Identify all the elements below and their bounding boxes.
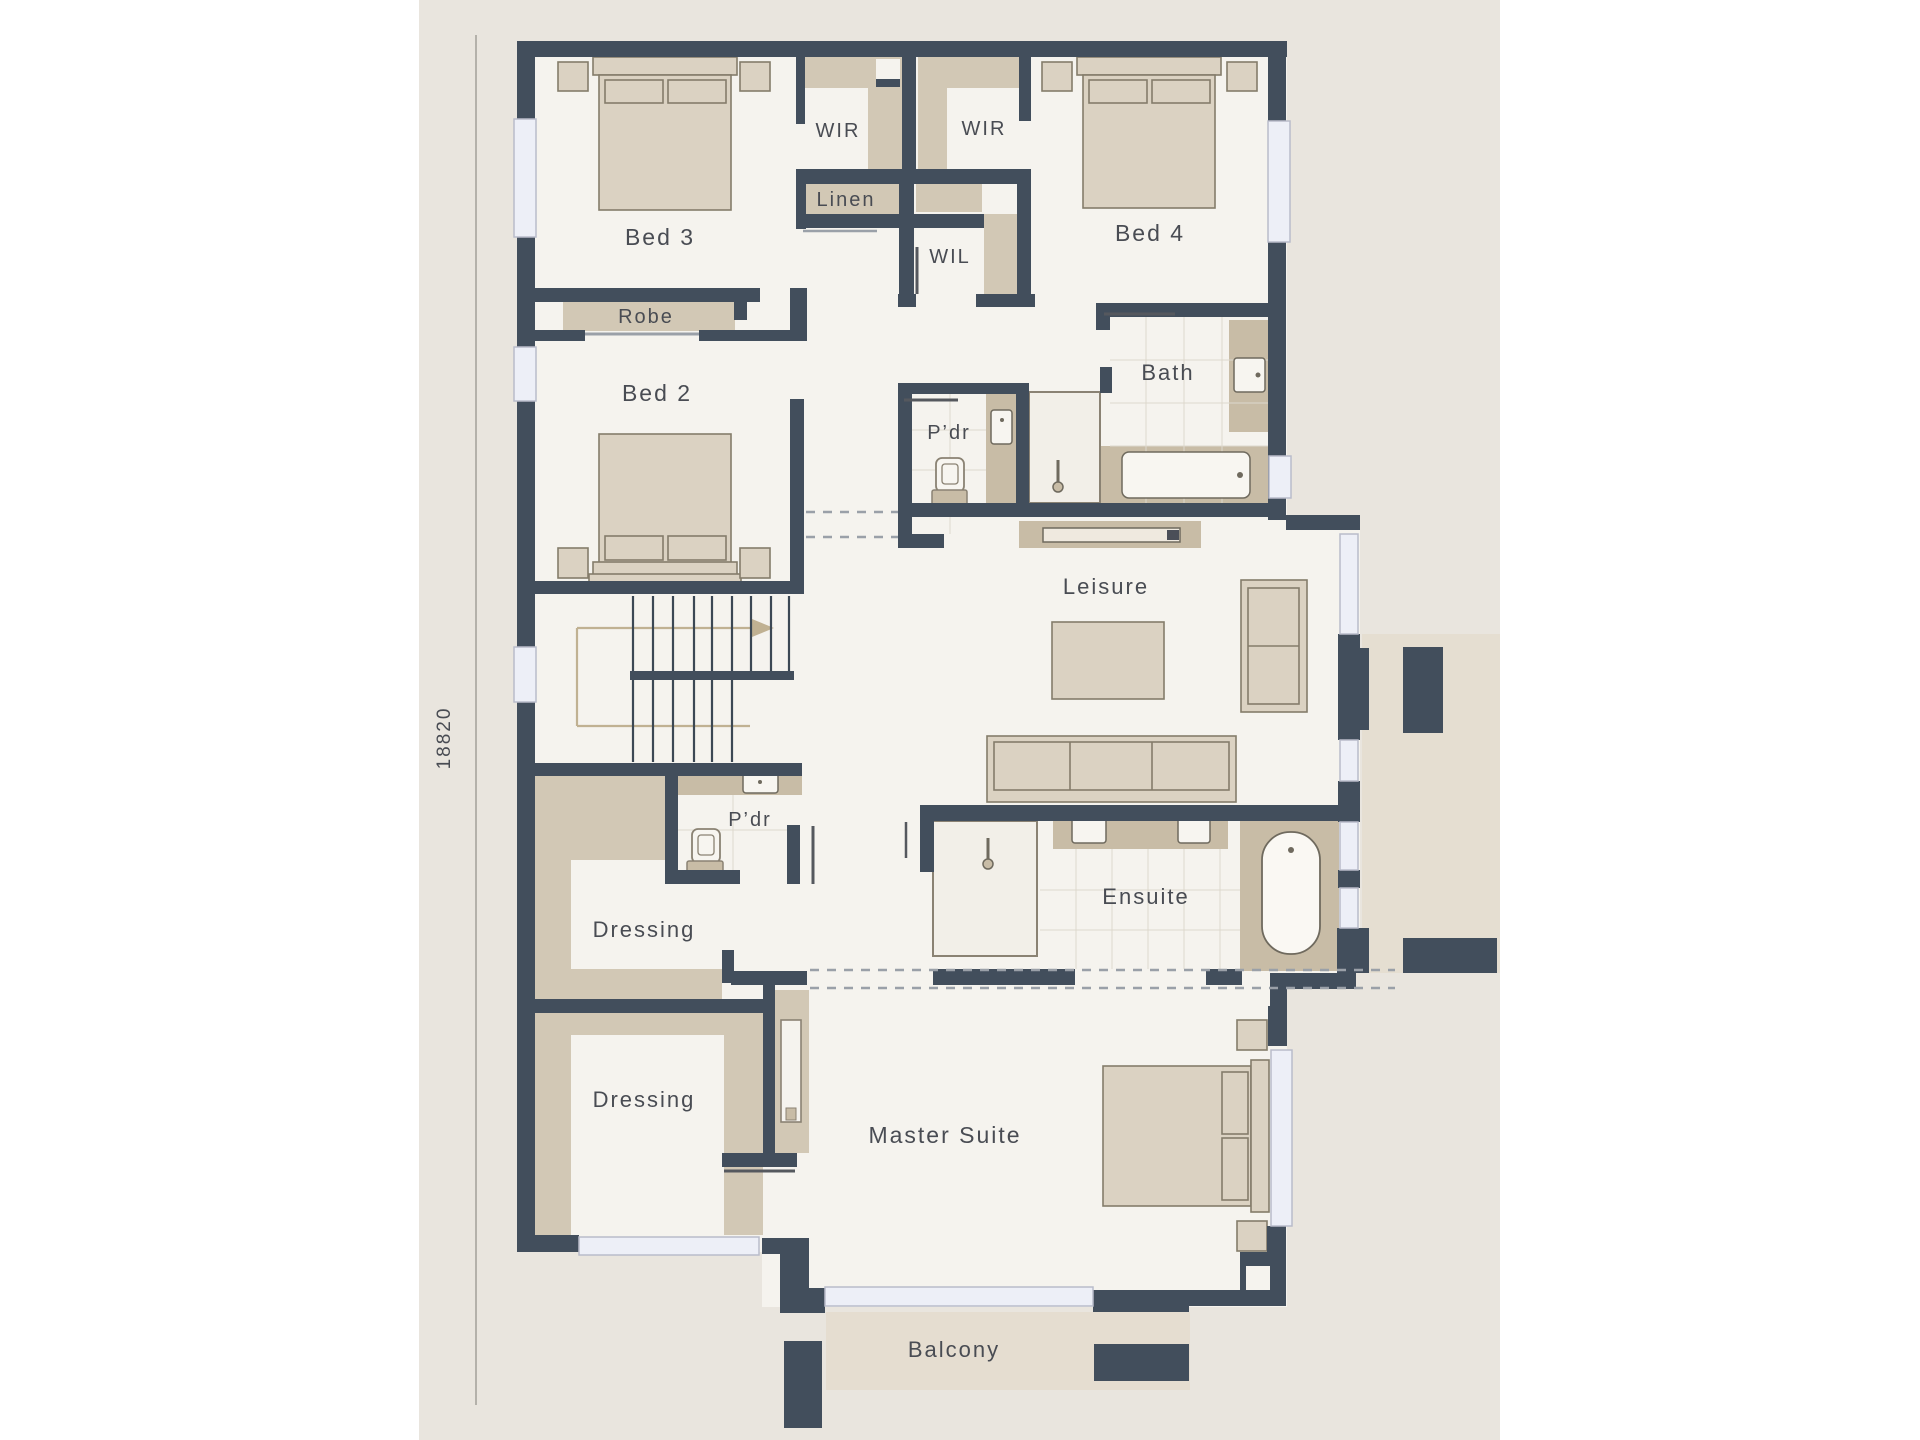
svg-text:Bath: Bath: [1141, 360, 1194, 385]
svg-text:Leisure: Leisure: [1063, 574, 1149, 599]
svg-text:P’dr: P’dr: [728, 809, 772, 831]
svg-text:WIR: WIR: [962, 118, 1007, 140]
svg-text:18820: 18820: [434, 707, 455, 770]
svg-text:Robe: Robe: [618, 306, 674, 328]
svg-text:Dressing: Dressing: [593, 1087, 696, 1112]
svg-text:Bed 4: Bed 4: [1115, 220, 1185, 246]
svg-text:P’dr: P’dr: [927, 422, 971, 444]
svg-text:WIR: WIR: [816, 120, 861, 142]
svg-text:WIL: WIL: [929, 246, 971, 268]
svg-text:Master Suite: Master Suite: [868, 1122, 1021, 1148]
svg-text:Balcony: Balcony: [908, 1337, 1000, 1362]
svg-text:Bed 2: Bed 2: [622, 380, 692, 406]
svg-text:Linen: Linen: [817, 189, 876, 211]
svg-text:Ensuite: Ensuite: [1102, 884, 1189, 909]
svg-text:Dressing: Dressing: [593, 917, 696, 942]
svg-text:Bed 3: Bed 3: [625, 224, 695, 250]
